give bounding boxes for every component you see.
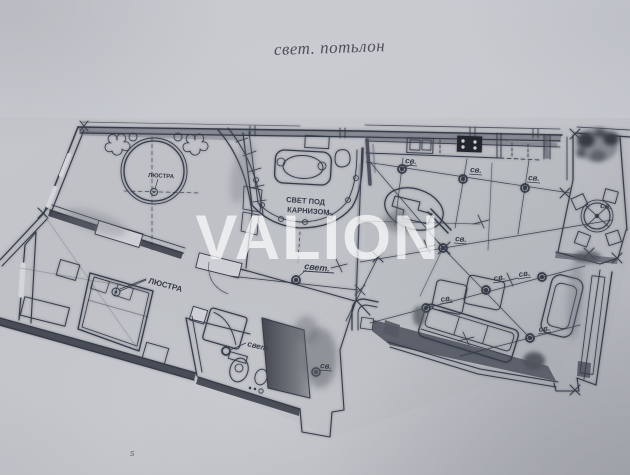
svg-text:VALION: VALION	[195, 203, 440, 273]
svg-text:св.: св.	[470, 165, 482, 175]
svg-text:свет. потьлон: свет. потьлон	[274, 36, 386, 59]
svg-text:св.: св.	[455, 234, 467, 244]
svg-text:св.: св.	[528, 173, 540, 183]
svg-text:св.: св.	[600, 201, 612, 211]
svg-text:св.: св.	[320, 361, 332, 371]
svg-text:s: s	[130, 448, 135, 458]
